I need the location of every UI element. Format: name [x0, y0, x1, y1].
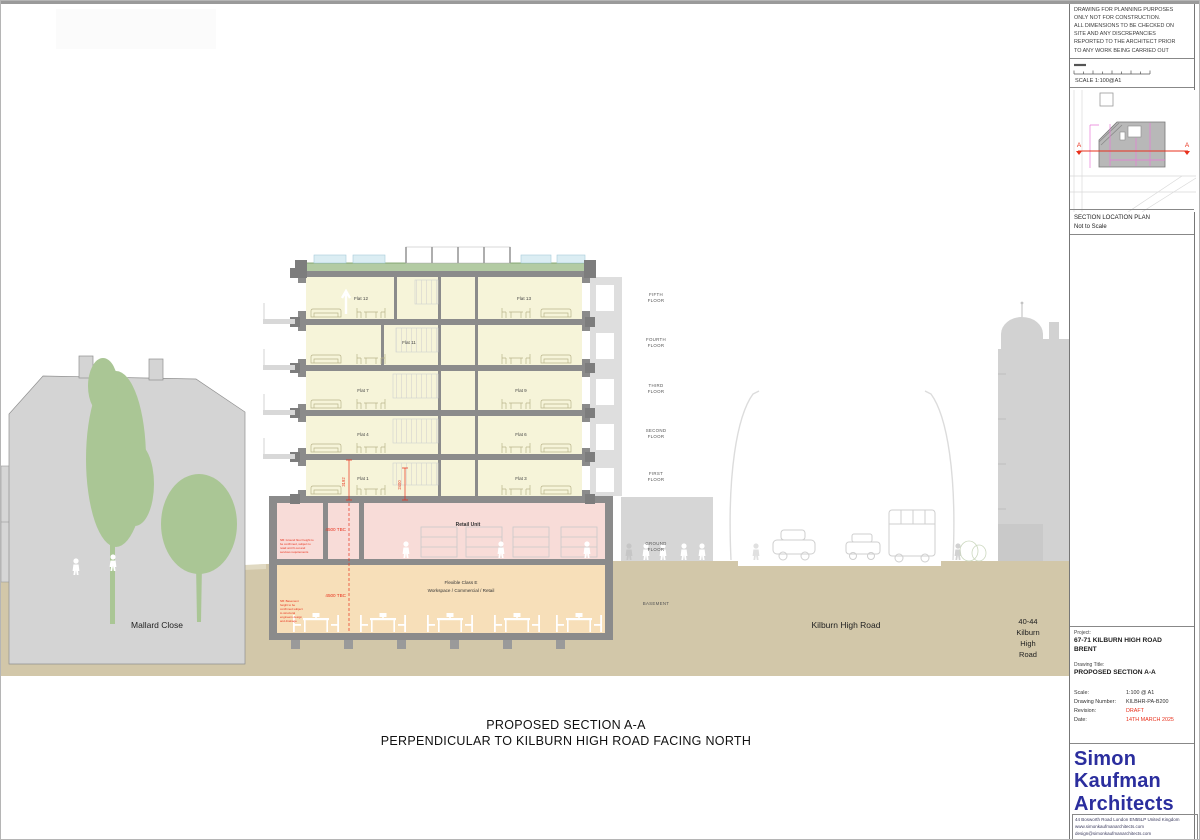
section-marker-a-right: A: [1185, 142, 1190, 149]
note-line: REPORTED TO THE ARCHITECT PRIOR: [1074, 38, 1192, 46]
drawing-sheet: 3192 2400 4500 TBC 4500 TBC NB: Ground f…: [0, 0, 1200, 840]
chimney: [149, 359, 163, 380]
bus-outline: [889, 510, 935, 562]
green-roof: [298, 263, 590, 271]
scale-bar: [1070, 61, 1196, 90]
scale-row-label: Scale:: [1074, 690, 1089, 696]
flat-label: Flat 6: [515, 432, 527, 437]
svg-text:services requirements: services requirements: [280, 550, 309, 554]
flat-label: Flat 12: [354, 296, 368, 301]
svg-text:SECOND: SECOND: [646, 428, 667, 433]
architect-logo: Simon Kaufman Architects: [1074, 748, 1174, 815]
note-line: ONLY NOT FOR CONSTRUCTION.: [1074, 14, 1192, 22]
section-marker-a-left: A: [1077, 142, 1082, 149]
drawing-number-row: Drawing Number: KILBHR-PA-B200: [1074, 699, 1192, 705]
shrub: [960, 541, 986, 561]
svg-text:FLOOR: FLOOR: [648, 547, 665, 552]
contact-email: design@simonkaufmanarchitects.com: [1075, 831, 1195, 838]
svg-text:and drainage: and drainage: [280, 619, 297, 623]
basement-unit-label-2: Workspace / Commercial / Retail: [428, 588, 495, 593]
dim-first-b: 2400: [397, 480, 402, 490]
drawing-main-title-line1: PROPOSED SECTION A-A: [486, 718, 646, 732]
project-borough: BRENT: [1074, 646, 1097, 655]
scale-row-value: 1:100 @ A1: [1126, 690, 1154, 696]
svg-text:THIRD: THIRD: [649, 383, 664, 388]
note-line: DRAWING FOR PLANNING PURPOSES: [1074, 6, 1192, 14]
note-line: ALL DIMENSIONS TO BE CHECKED ON: [1074, 22, 1192, 30]
parapet: [295, 260, 307, 278]
section-location-plan: A A: [1070, 90, 1196, 212]
chimney: [1049, 322, 1059, 342]
revision-value: DRAFT: [1126, 708, 1144, 714]
svg-text:BASEMENT: BASEMENT: [643, 601, 670, 606]
svg-text:FLOOR: FLOOR: [648, 389, 665, 394]
parapet: [584, 260, 596, 278]
roof-plant-enclosure: [406, 247, 510, 263]
blank-stamp-box: [56, 9, 216, 49]
title-panel: DRAWING FOR PLANNING PURPOSES ONLY NOT F…: [1069, 4, 1195, 839]
flat-label: Flat 4: [357, 432, 369, 437]
flat-label: Flat 13: [517, 296, 531, 301]
car-outline: [773, 530, 815, 560]
svg-text:Kilburn: Kilburn: [1016, 628, 1039, 637]
drawing-title-label: Drawing Title:: [1074, 662, 1104, 668]
project-name: 67-71 KILBURN HIGH ROAD: [1074, 637, 1162, 646]
date-row: Date: 14TH MARCH 2025: [1074, 717, 1192, 723]
drawing-number-value: KILBHR-PA-B200: [1126, 699, 1168, 705]
scale-row: Scale: 1:100 @ A1: [1074, 690, 1192, 696]
logo-line-2: Kaufman: [1074, 770, 1174, 792]
svg-text:FLOOR: FLOOR: [648, 298, 665, 303]
svg-text:FLOOR: FLOOR: [648, 343, 665, 348]
svg-text:Road: Road: [1019, 650, 1037, 659]
svg-text:40-44: 40-44: [1018, 617, 1037, 626]
logo-line-1: Simon: [1074, 748, 1174, 770]
street-label-kilburn-high-road: Kilburn High Road: [812, 620, 881, 630]
logo-line-3: Architects: [1074, 793, 1174, 815]
drawing-number-label: Drawing Number:: [1074, 699, 1116, 705]
dim-ground: 4500 TBC: [325, 527, 346, 532]
car-outline: [846, 534, 880, 560]
planning-notes: DRAWING FOR PLANNING PURPOSES ONLY NOT F…: [1074, 6, 1192, 55]
plan-outbuilding: [1100, 93, 1113, 106]
drawing-main-title-line2: PERPENDICULAR TO KILBURN HIGH ROAD FACIN…: [381, 734, 751, 748]
svg-text:High: High: [1020, 639, 1035, 648]
dim-first-a: 3192: [341, 477, 346, 487]
section-drawing: 3192 2400 4500 TBC 4500 TBC NB: Ground f…: [1, 4, 1069, 840]
svg-text:FIRST: FIRST: [649, 471, 663, 476]
svg-text:FLOOR: FLOOR: [648, 477, 665, 482]
basement-unit-label-1: Flexible Class E: [445, 580, 478, 585]
contact-website: www.simonkaufmanarchitects.com: [1075, 824, 1195, 831]
project-label: Project:: [1074, 630, 1091, 636]
person-silhouette: [753, 543, 760, 560]
note-line: SITE AND ANY DISCREPANCIES: [1074, 30, 1192, 38]
date-label: Date:: [1074, 717, 1087, 723]
flat-label: Flat 1: [357, 476, 369, 481]
architect-contact: 44 Bosworth Road London EN55LP United Ki…: [1072, 814, 1198, 840]
retail-unit-label: Retail Unit: [456, 522, 481, 528]
flat-label: Flat 9: [515, 388, 527, 393]
note-line: TO ANY WORK BEING CARRIED OUT: [1074, 47, 1192, 55]
revision-row: Revision: DRAFT: [1074, 708, 1192, 714]
dome: [1001, 317, 1043, 334]
dim-basement: 4500 TBC: [325, 593, 346, 598]
street-label-mallard-close: Mallard Close: [131, 620, 183, 630]
contact-address: 44 Bosworth Road London EN55LP United Ki…: [1075, 817, 1195, 824]
flat-label: Flat 3: [515, 476, 527, 481]
svg-text:FLOOR: FLOOR: [648, 434, 665, 439]
scale-label: SCALE 1:100@A1: [1075, 78, 1121, 84]
lamp-posts: [730, 391, 954, 560]
flat-label: Flat 11: [402, 340, 416, 345]
location-plan-title: SECTION LOCATION PLAN: [1074, 214, 1150, 223]
location-plan-subtitle: Not to Scale: [1074, 223, 1150, 232]
date-value: 14TH MARCH 2025: [1126, 717, 1174, 723]
svg-text:GROUND: GROUND: [645, 541, 666, 546]
right-context-building: [998, 302, 1069, 561]
flat-label: Flat 7: [357, 388, 369, 393]
drawing-title-value: PROPOSED SECTION A-A: [1074, 669, 1156, 678]
revision-label: Revision:: [1074, 708, 1096, 714]
basement-space: [277, 565, 605, 633]
svg-text:FIFTH: FIFTH: [649, 292, 663, 297]
svg-text:FOURTH: FOURTH: [646, 337, 666, 342]
